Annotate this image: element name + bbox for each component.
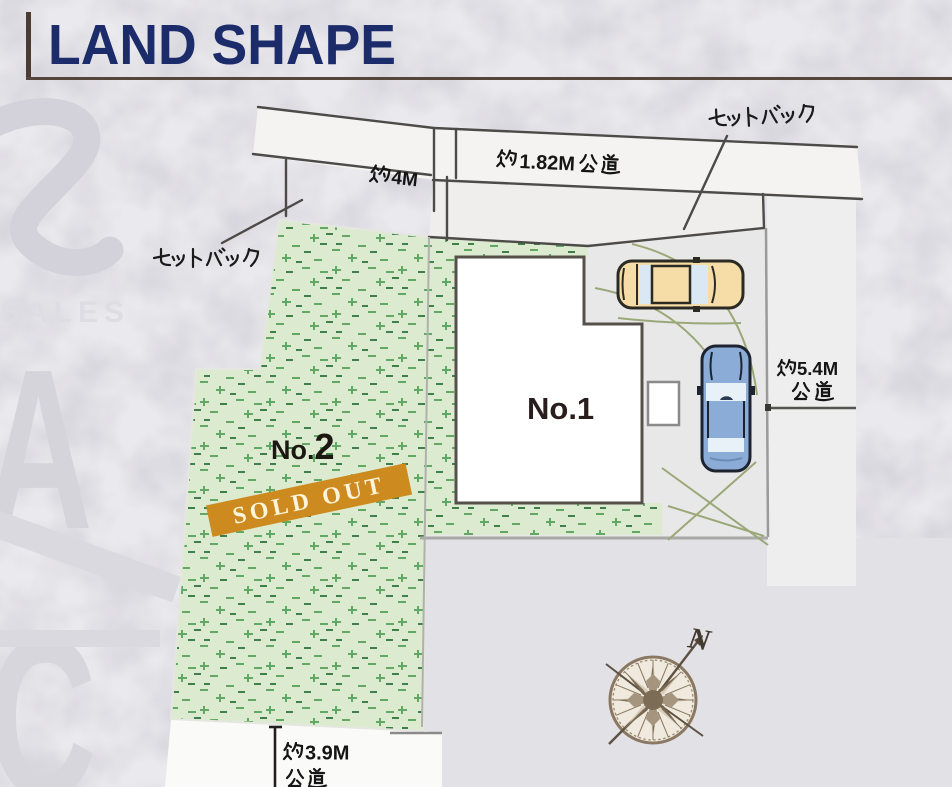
svg-text:1.82M: 1.82M	[519, 151, 576, 175]
svg-text:3.9M: 3.9M	[305, 743, 349, 765]
svg-text:C: C	[0, 589, 97, 787]
svg-text:No.1: No.1	[527, 391, 594, 426]
svg-text:LAND SHAPE: LAND SHAPE	[48, 13, 396, 77]
svg-text:5.4M: 5.4M	[797, 358, 838, 379]
svg-text:4M: 4M	[390, 167, 419, 191]
